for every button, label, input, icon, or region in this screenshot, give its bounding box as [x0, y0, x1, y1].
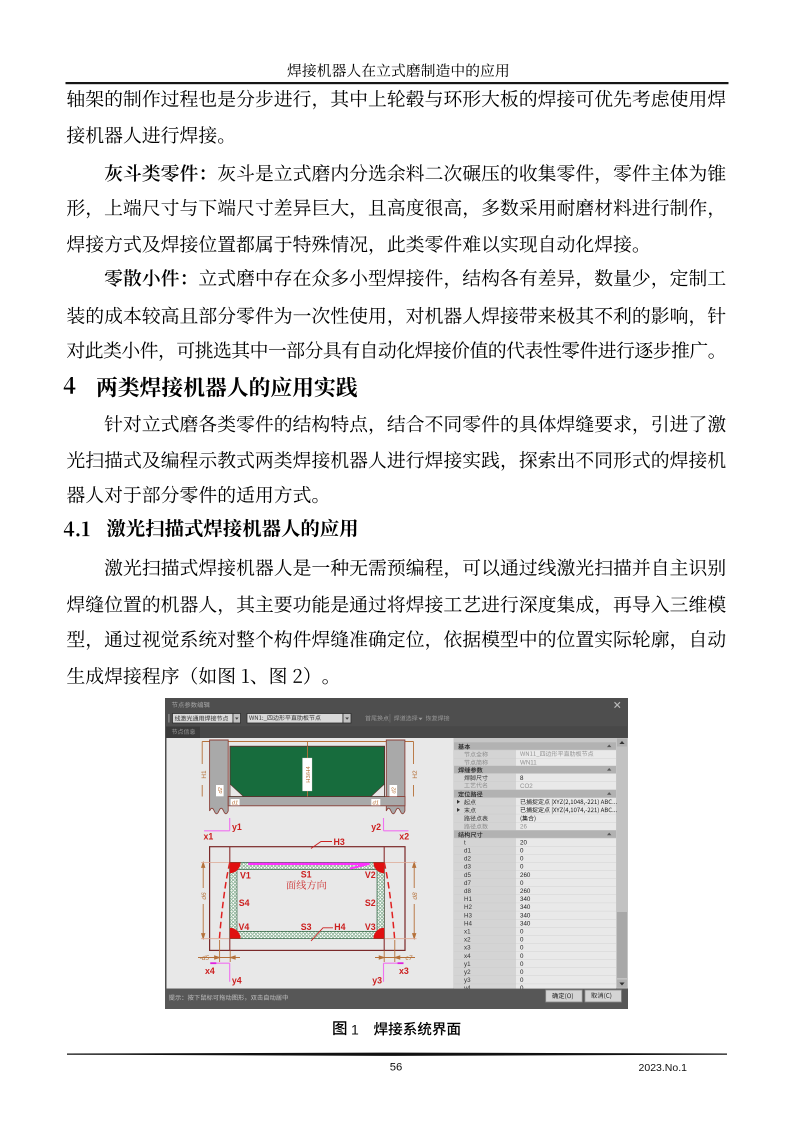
svg-text:d2: d2 [218, 787, 224, 793]
svg-text:0: 0 [520, 848, 524, 855]
svg-text:1: 1 [351, 1022, 359, 1038]
svg-text:340: 340 [520, 904, 531, 911]
svg-text:H4: H4 [334, 922, 345, 932]
svg-text:d8: d8 [464, 888, 471, 895]
svg-text:0: 0 [520, 977, 524, 984]
svg-text:340: 340 [520, 896, 531, 903]
svg-text:x3: x3 [399, 966, 409, 976]
svg-text:t: t [464, 839, 466, 846]
svg-text:d3: d3 [464, 864, 471, 871]
svg-text:0: 0 [520, 961, 524, 968]
svg-text:H3/H4: H3/H4 [306, 766, 312, 783]
svg-text:340: 340 [520, 912, 531, 919]
svg-text:0: 0 [520, 953, 524, 960]
svg-text:0: 0 [520, 945, 524, 952]
svg-text:V1: V1 [240, 870, 251, 880]
svg-text:S1: S1 [301, 870, 312, 880]
svg-text:20: 20 [520, 839, 527, 846]
svg-text:WN11: WN11 [520, 759, 537, 766]
svg-text:H3: H3 [464, 912, 472, 919]
svg-text:0: 0 [520, 864, 524, 871]
svg-text:d1: d1 [372, 800, 378, 806]
svg-text:H2: H2 [464, 904, 472, 911]
svg-text:x4: x4 [464, 953, 471, 960]
svg-text:S3: S3 [301, 922, 312, 932]
svg-text:x2: x2 [464, 937, 471, 944]
svg-text:d2: d2 [392, 787, 398, 793]
svg-text:8: 8 [520, 775, 524, 782]
svg-text:-d5: -d5 [200, 955, 210, 962]
svg-text:d1: d1 [464, 848, 471, 855]
svg-text:CO2: CO2 [520, 783, 533, 790]
svg-text:d1: d1 [232, 800, 238, 806]
svg-text:H1: H1 [201, 770, 208, 779]
svg-text:0: 0 [520, 880, 524, 887]
svg-text:H1: H1 [464, 896, 472, 903]
svg-text:y1: y1 [464, 961, 471, 968]
svg-text:y2: y2 [371, 822, 381, 832]
svg-text:0: 0 [520, 937, 524, 944]
svg-text:0: 0 [520, 856, 524, 863]
svg-text:y1: y1 [232, 822, 242, 832]
svg-text:d7: d7 [464, 880, 471, 887]
svg-text:y4: y4 [232, 976, 242, 986]
svg-text:d6: d6 [201, 892, 208, 900]
svg-text:S2: S2 [365, 898, 376, 908]
svg-text:V4: V4 [239, 922, 250, 932]
svg-text:H2: H2 [412, 770, 419, 779]
svg-text:x2: x2 [399, 831, 409, 841]
svg-text:x1: x1 [464, 929, 471, 936]
svg-text:0: 0 [520, 929, 524, 936]
svg-text:x1: x1 [204, 831, 214, 841]
svg-text:d8: d8 [412, 892, 419, 900]
svg-text:S4: S4 [239, 898, 250, 908]
svg-text:V3: V3 [365, 922, 376, 932]
svg-text:56: 56 [390, 1062, 403, 1074]
svg-text:H4: H4 [464, 920, 472, 927]
svg-text:340: 340 [520, 920, 531, 927]
svg-text:y3: y3 [372, 976, 382, 986]
svg-text:0: 0 [520, 969, 524, 976]
svg-text:260: 260 [520, 888, 531, 895]
svg-text:26: 26 [520, 823, 527, 830]
svg-text:260: 260 [520, 872, 531, 879]
svg-text:y3: y3 [464, 977, 471, 984]
svg-text:d5: d5 [464, 872, 471, 879]
svg-text:c7: c7 [406, 955, 413, 962]
svg-text:x4: x4 [205, 966, 215, 976]
svg-text:y2: y2 [464, 969, 471, 976]
svg-text:V2: V2 [365, 870, 376, 880]
svg-text:H3: H3 [334, 837, 345, 847]
svg-text:x3: x3 [464, 945, 471, 952]
svg-text:2023.No.1: 2023.No.1 [639, 1062, 688, 1074]
svg-text:d2: d2 [464, 856, 471, 863]
